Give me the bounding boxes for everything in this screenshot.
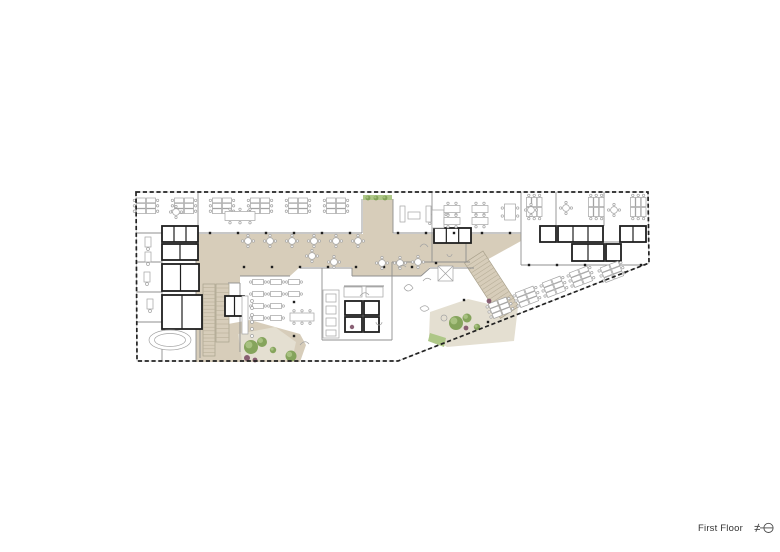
desk <box>147 198 156 203</box>
chair <box>323 210 325 212</box>
chair <box>146 283 149 286</box>
column <box>243 266 245 268</box>
shrub <box>244 355 250 361</box>
chair <box>249 208 251 210</box>
stool <box>251 314 254 317</box>
core-walls <box>434 228 471 243</box>
chair <box>538 217 540 219</box>
chair <box>475 214 477 216</box>
core-walls <box>558 226 603 242</box>
chair <box>252 240 254 242</box>
chair <box>561 276 564 279</box>
column <box>481 232 483 234</box>
chair <box>305 255 307 257</box>
chair <box>417 266 419 268</box>
column <box>584 264 586 266</box>
chair <box>516 304 519 307</box>
desk <box>641 208 646 217</box>
chair <box>194 199 196 201</box>
chair <box>538 296 541 299</box>
table <box>444 218 460 225</box>
table <box>253 292 264 297</box>
desk <box>213 203 222 208</box>
chair <box>613 203 615 205</box>
desk <box>588 198 593 207</box>
chair <box>375 262 377 264</box>
chair <box>209 205 211 207</box>
chair <box>362 240 364 242</box>
chair <box>590 271 593 274</box>
chair <box>565 212 567 214</box>
desk <box>261 209 270 214</box>
chair <box>429 222 431 224</box>
chair <box>613 214 615 216</box>
table <box>271 316 282 321</box>
chair <box>247 205 249 207</box>
chair <box>569 279 572 282</box>
chair <box>313 245 315 247</box>
tree <box>463 314 472 323</box>
column <box>349 232 351 234</box>
desk <box>223 203 232 208</box>
desk <box>175 198 184 203</box>
chair <box>239 222 241 224</box>
chair <box>592 276 595 279</box>
desk <box>185 198 194 203</box>
desk <box>144 272 150 282</box>
chair <box>323 199 325 201</box>
chair <box>241 240 243 242</box>
chair <box>488 310 491 313</box>
desk <box>327 198 336 203</box>
chair <box>404 262 406 264</box>
chair <box>316 255 318 257</box>
chair <box>308 210 310 212</box>
chair <box>307 240 309 242</box>
chair <box>565 286 568 289</box>
desk <box>636 208 641 217</box>
chair <box>285 210 287 212</box>
chair <box>232 205 234 207</box>
desk <box>137 203 146 208</box>
chair <box>559 207 561 209</box>
chair <box>570 207 572 209</box>
table <box>245 238 252 245</box>
column <box>293 301 295 303</box>
desk <box>599 208 604 217</box>
table <box>289 292 300 297</box>
table-inner <box>155 334 186 347</box>
chair <box>483 202 485 204</box>
fixture <box>242 296 248 334</box>
chair <box>229 222 231 224</box>
table <box>563 205 570 212</box>
chair <box>171 205 173 207</box>
chair <box>483 226 485 228</box>
core-walls <box>364 301 379 315</box>
table <box>289 238 296 245</box>
chair <box>632 217 634 219</box>
table <box>505 204 516 220</box>
chair <box>209 210 211 212</box>
chair <box>637 217 639 219</box>
table <box>379 260 386 267</box>
chair <box>590 217 592 219</box>
column <box>293 232 295 234</box>
chair <box>264 293 266 295</box>
chair <box>169 211 171 213</box>
chair <box>381 256 383 258</box>
tree-highlight <box>287 352 293 358</box>
column <box>453 232 455 234</box>
desk <box>145 252 151 262</box>
core-room <box>162 244 198 260</box>
fixture <box>326 318 336 326</box>
chair <box>300 293 302 295</box>
chair <box>269 234 271 236</box>
desk <box>630 198 635 207</box>
column <box>435 262 437 264</box>
chair <box>411 261 413 263</box>
tree-highlight <box>270 347 273 350</box>
fixture <box>408 212 420 219</box>
desk <box>251 203 260 208</box>
desk <box>261 198 270 203</box>
chair <box>247 234 249 236</box>
chair <box>300 281 302 283</box>
core-room <box>162 295 202 329</box>
chair <box>286 281 288 283</box>
chair <box>567 274 570 277</box>
fixture <box>400 206 405 222</box>
core-room <box>606 244 621 261</box>
column <box>509 232 511 234</box>
chair <box>447 226 449 228</box>
chair <box>249 222 251 224</box>
chair <box>247 199 249 201</box>
tree <box>270 347 276 353</box>
stool <box>251 328 254 331</box>
table <box>311 238 318 245</box>
chair <box>501 207 503 209</box>
core-walls <box>345 317 362 332</box>
chair <box>642 194 644 196</box>
chair <box>285 199 287 201</box>
table <box>267 238 274 245</box>
chair <box>269 245 271 247</box>
stool <box>251 335 254 338</box>
table <box>271 280 282 285</box>
tree <box>244 340 258 354</box>
chair <box>393 262 395 264</box>
table <box>415 259 422 266</box>
desk <box>641 198 646 207</box>
chair <box>156 210 158 212</box>
chair <box>264 281 266 283</box>
chair <box>595 217 597 219</box>
chair <box>515 299 518 302</box>
chair <box>194 210 196 212</box>
core-room <box>558 226 603 242</box>
chair <box>282 317 284 319</box>
chair <box>147 248 150 251</box>
chair <box>538 194 540 196</box>
table <box>472 218 488 225</box>
column <box>411 266 413 268</box>
table <box>611 207 618 214</box>
chair <box>291 245 293 247</box>
tree-highlight <box>383 196 385 198</box>
chair <box>422 261 424 263</box>
chair <box>270 210 272 212</box>
chair <box>563 281 566 284</box>
desk <box>145 237 151 247</box>
chair <box>268 281 270 283</box>
chair <box>232 199 234 201</box>
table <box>472 206 488 213</box>
chair <box>133 210 135 212</box>
shrub <box>464 326 469 331</box>
core-room <box>345 317 362 332</box>
chair <box>618 209 620 211</box>
column <box>209 232 211 234</box>
desk <box>251 198 260 203</box>
column <box>237 232 239 234</box>
chair <box>308 205 310 207</box>
tree-highlight <box>474 324 477 327</box>
table <box>225 212 255 221</box>
desk <box>289 209 298 214</box>
chair <box>507 297 510 300</box>
floor-plan-canvas <box>0 0 780 552</box>
desk <box>137 209 146 214</box>
chair <box>346 210 348 212</box>
long-table <box>290 310 314 325</box>
desk <box>532 198 537 207</box>
core-walls <box>540 226 556 242</box>
chair <box>318 240 320 242</box>
chair <box>455 214 457 216</box>
chair <box>264 305 266 307</box>
tree <box>257 337 267 347</box>
tree-highlight <box>374 196 376 198</box>
desk <box>599 198 604 207</box>
chair <box>250 281 252 283</box>
chair <box>447 214 449 216</box>
desk <box>594 208 599 217</box>
chair <box>313 234 315 236</box>
chair <box>483 214 485 216</box>
column <box>425 232 427 234</box>
table <box>331 259 338 266</box>
desk <box>147 203 156 208</box>
desk <box>636 198 641 207</box>
long-table <box>225 208 255 224</box>
chair <box>340 240 342 242</box>
chair <box>386 262 388 264</box>
chair <box>268 317 270 319</box>
desk <box>289 203 298 208</box>
fixture <box>326 294 336 302</box>
drawing-sheet: First Floor <box>0 0 780 552</box>
desk <box>327 209 336 214</box>
column <box>556 264 558 266</box>
tree <box>383 196 388 201</box>
chair <box>293 322 295 324</box>
chair <box>263 240 265 242</box>
chair <box>250 293 252 295</box>
table <box>289 280 300 285</box>
chair <box>329 240 331 242</box>
table <box>355 238 362 245</box>
chair <box>536 291 539 294</box>
chair <box>535 209 537 211</box>
chair <box>274 240 276 242</box>
chair <box>455 202 457 204</box>
core-room <box>162 226 198 242</box>
chair <box>180 211 182 213</box>
table <box>333 238 340 245</box>
column <box>355 266 357 268</box>
chair <box>301 310 303 312</box>
chair <box>607 209 609 211</box>
fixture <box>366 287 383 297</box>
chair <box>588 266 591 269</box>
chair <box>147 263 150 266</box>
column <box>397 232 399 234</box>
table <box>290 313 314 321</box>
stool <box>251 307 254 310</box>
tree <box>374 196 379 201</box>
desk <box>299 198 308 203</box>
chair <box>194 205 196 207</box>
desk <box>537 208 542 217</box>
desk <box>630 208 635 217</box>
chair <box>543 294 546 297</box>
chair <box>621 266 624 269</box>
desk <box>299 203 308 208</box>
chair <box>282 281 284 283</box>
chair <box>533 217 535 219</box>
chair <box>600 217 602 219</box>
chair <box>475 202 477 204</box>
chair <box>534 286 537 289</box>
core-walls <box>162 226 198 242</box>
desk <box>594 198 599 207</box>
chair <box>323 205 325 207</box>
desk <box>337 198 346 203</box>
chair <box>308 199 310 201</box>
chair <box>511 307 514 310</box>
chair <box>600 274 603 277</box>
chair <box>293 310 295 312</box>
chair <box>475 226 477 228</box>
chair <box>156 205 158 207</box>
desk <box>213 198 222 203</box>
stool <box>251 321 254 324</box>
chair <box>455 226 457 228</box>
chair <box>619 261 622 264</box>
table <box>271 304 282 309</box>
fixture <box>344 287 362 297</box>
desk <box>588 208 593 217</box>
chair <box>311 249 313 251</box>
fixture <box>326 306 336 314</box>
chair <box>489 315 492 318</box>
chair <box>590 194 592 196</box>
desk <box>185 203 194 208</box>
drawing-footer: First Floor <box>698 520 777 536</box>
chair <box>357 234 359 236</box>
table <box>528 207 535 214</box>
boardroom-table <box>149 330 191 350</box>
chair <box>528 217 530 219</box>
chair <box>175 216 177 218</box>
column <box>487 321 489 323</box>
chair <box>291 234 293 236</box>
desk <box>337 209 346 214</box>
chair <box>156 199 158 201</box>
core-room <box>540 226 556 242</box>
column <box>528 264 530 266</box>
north-arrow-icon <box>753 520 777 536</box>
chair <box>338 261 340 263</box>
chair <box>632 194 634 196</box>
chair <box>296 240 298 242</box>
chair <box>309 310 311 312</box>
chair <box>301 322 303 324</box>
core-room <box>225 296 244 316</box>
chair <box>417 255 419 257</box>
chair <box>264 317 266 319</box>
desk <box>223 198 232 203</box>
table <box>271 292 282 297</box>
chair <box>530 203 532 205</box>
chair <box>637 194 639 196</box>
chair <box>346 205 348 207</box>
chair <box>540 284 543 287</box>
chair <box>247 245 249 247</box>
chair <box>399 267 401 269</box>
desk <box>299 209 308 214</box>
chair <box>600 194 602 196</box>
chair <box>565 201 567 203</box>
chair <box>335 234 337 236</box>
table <box>253 316 264 321</box>
desk <box>261 203 270 208</box>
core-room <box>572 244 604 261</box>
chair <box>268 293 270 295</box>
chair <box>346 199 348 201</box>
chair <box>327 261 329 263</box>
table <box>309 253 316 260</box>
desk <box>147 209 156 214</box>
chair <box>598 269 601 272</box>
chair <box>513 294 516 297</box>
chair <box>333 255 335 257</box>
table <box>173 209 180 216</box>
table <box>444 206 460 213</box>
chair <box>285 240 287 242</box>
desk <box>327 203 336 208</box>
tree-highlight <box>258 338 263 343</box>
tree-highlight <box>245 341 252 348</box>
chair <box>642 217 644 219</box>
chair <box>517 215 519 217</box>
tree <box>366 196 371 201</box>
chair <box>229 208 231 210</box>
chair <box>282 305 284 307</box>
